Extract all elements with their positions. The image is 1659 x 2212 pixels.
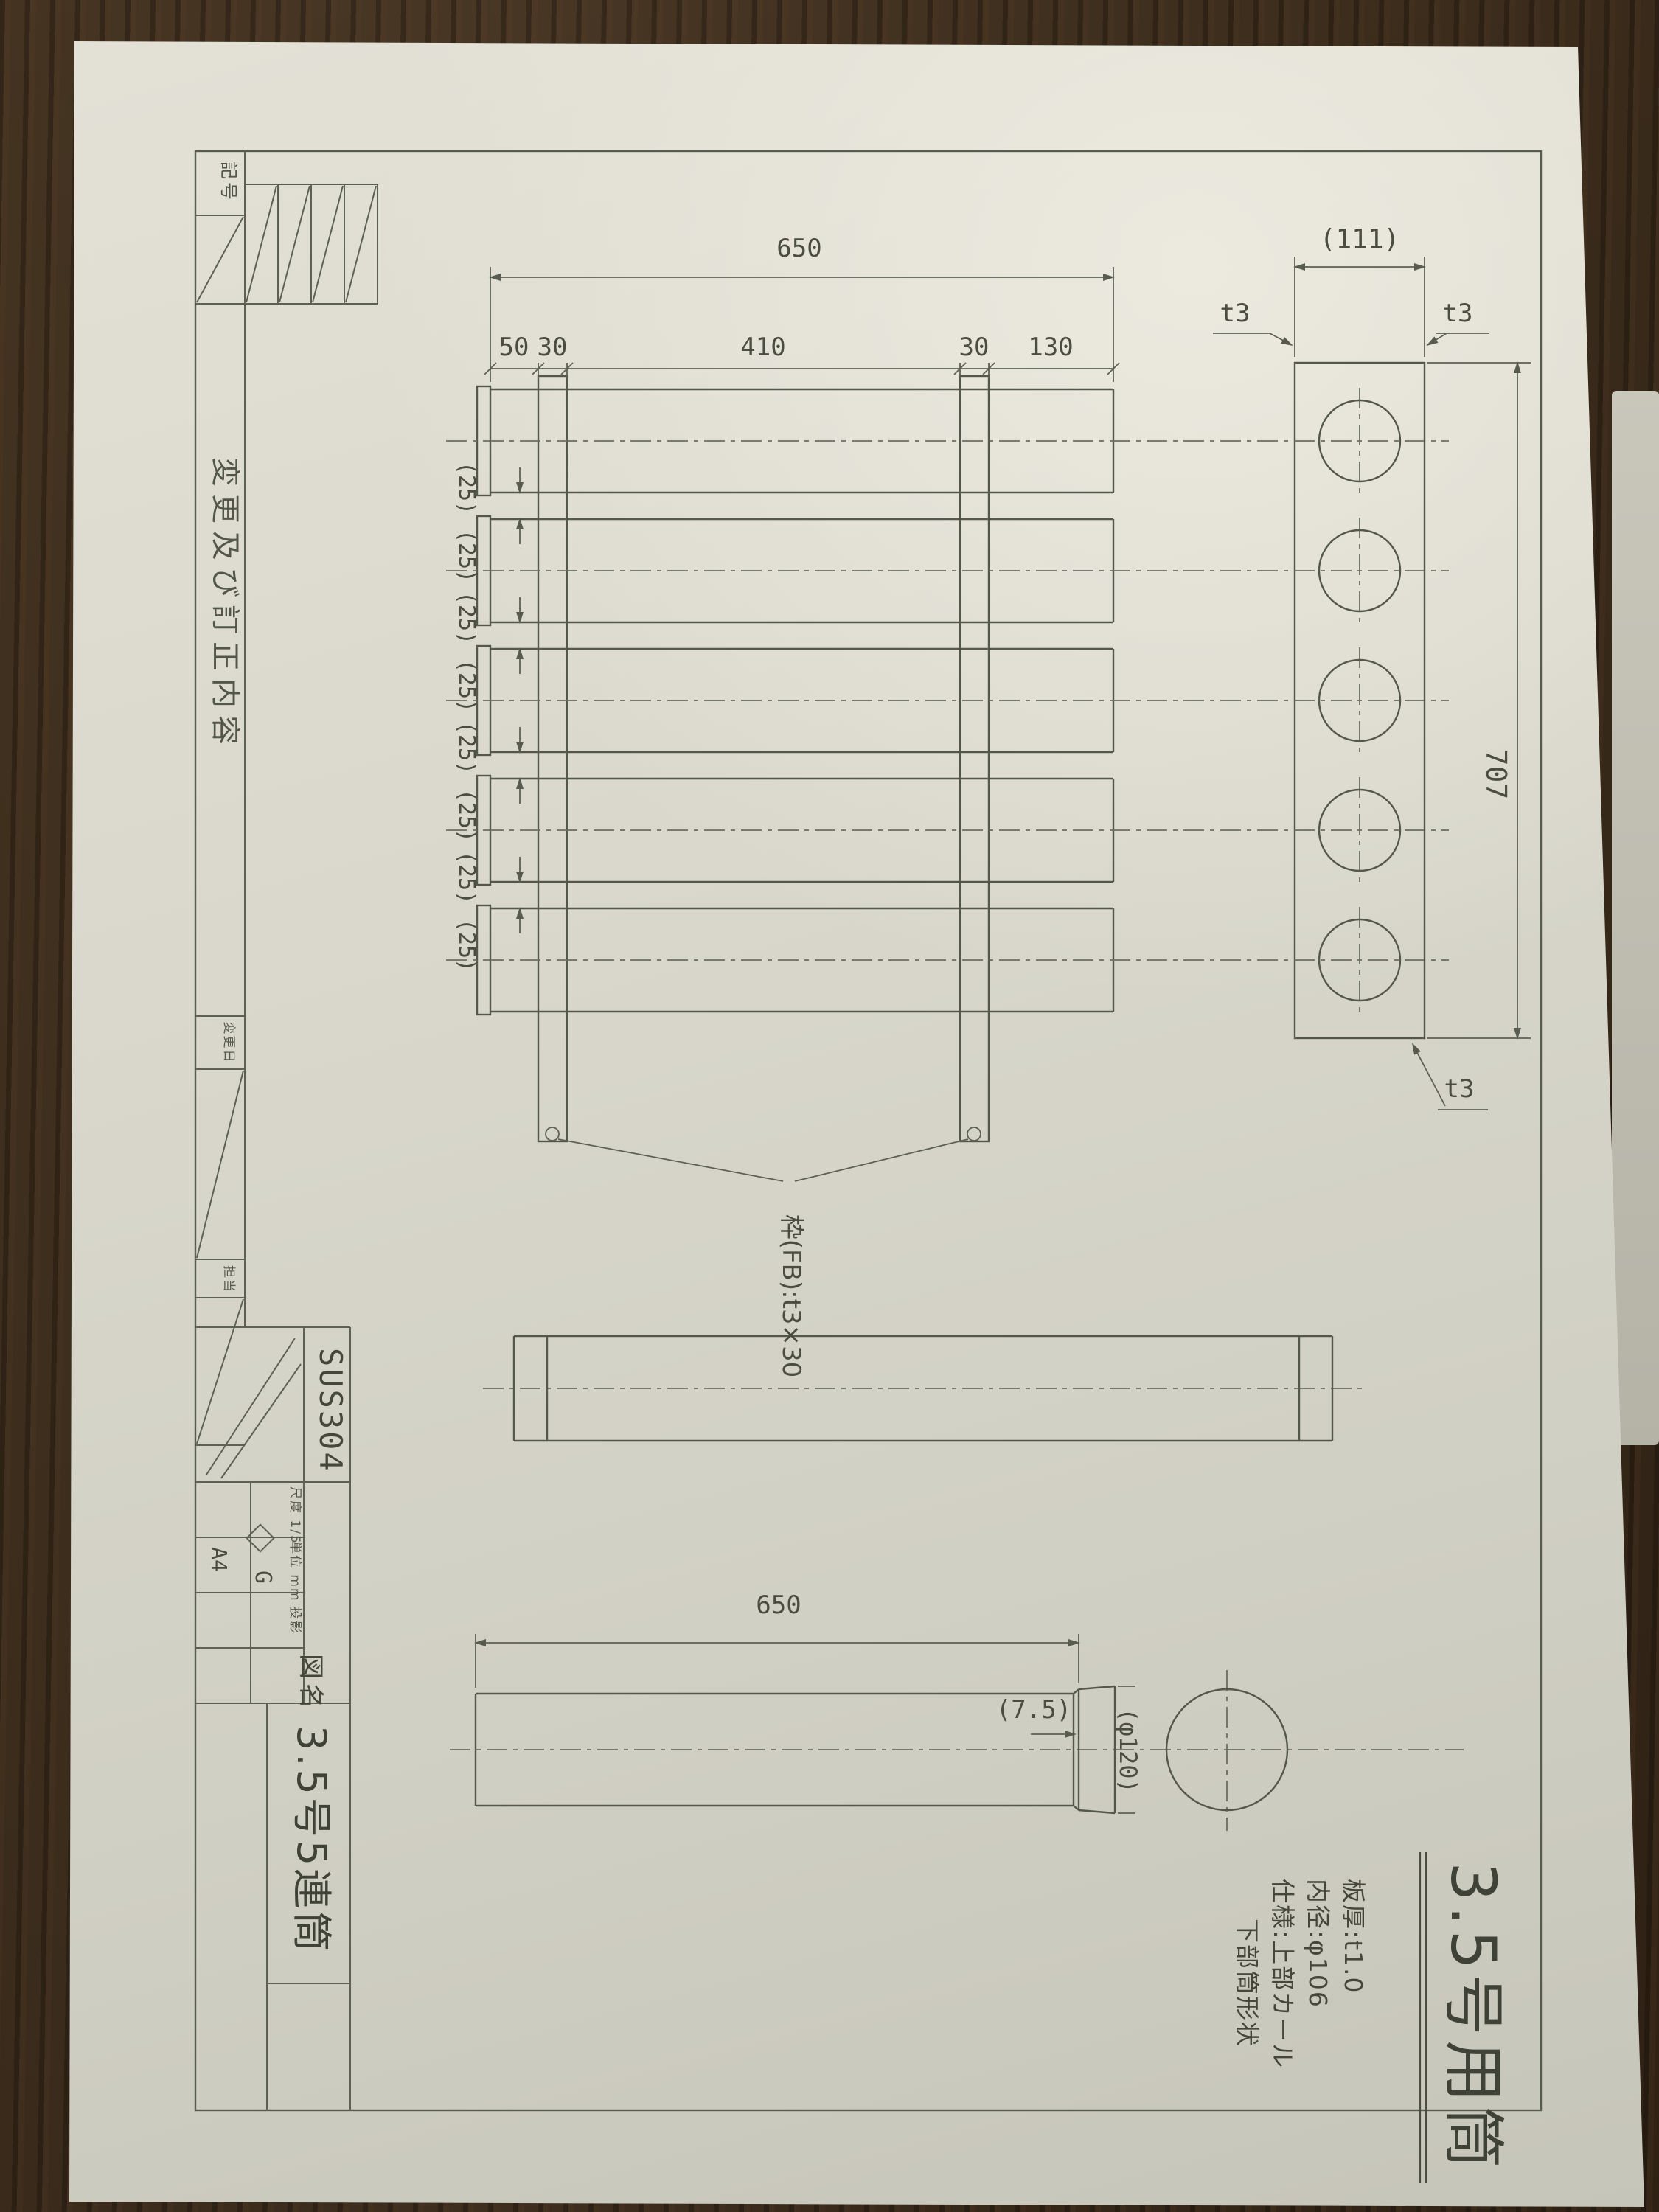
dim-50: 50 — [498, 335, 529, 361]
material-sus304: SUS304 — [314, 1348, 347, 1469]
dim-30b: 30 — [959, 335, 990, 361]
dim-30a: 30 — [537, 335, 568, 361]
dim-25-gap4b: (25) — [455, 911, 479, 979]
dim-t3-left: t3 — [1215, 301, 1255, 327]
revision-symbol-label: 記号 — [219, 159, 237, 205]
centerlines — [446, 388, 1464, 1831]
tube-bank-view — [477, 376, 1113, 1141]
frame-rail-left — [538, 376, 567, 1141]
spec-inner-diameter: 内径:φ106 — [1304, 1879, 1330, 2107]
sheet-size-a4: A4 — [209, 1541, 230, 1578]
drawing-sheet: 650 50 30 410 30 130 (111) t3 t3 t3 650 … — [0, 0, 1659, 2212]
dim-t3-right: t3 — [1438, 301, 1478, 327]
company-logo-letter: G — [251, 1562, 275, 1593]
dim-25-gap4a: (25) — [455, 844, 479, 911]
frame-flat-bar-note: 枠(FB):t3×30 — [777, 1180, 804, 1412]
revision-date-label: 変更日 — [221, 1019, 234, 1066]
spec-thickness: 板厚:t1.0 — [1340, 1879, 1366, 2107]
border-frame — [195, 151, 1541, 2110]
dim-25-gap3b: (25) — [455, 782, 479, 849]
dim-25-gap2a: (25) — [455, 584, 479, 652]
revision-person-label: 担当 — [221, 1262, 234, 1296]
titleblock-scale-row: 尺度 1/5 — [288, 1486, 301, 1535]
dim-707: 707 — [1481, 728, 1510, 820]
dim-25-gap1b: (25) — [455, 522, 479, 590]
dimension-lines — [476, 257, 1531, 1813]
table-edge-object — [1612, 391, 1659, 1445]
titleblock-projection-row: 投影 — [288, 1597, 301, 1644]
spec-upper-end: 仕様:上部カール — [1269, 1879, 1295, 2129]
dim-130: 130 — [1027, 335, 1074, 361]
note-title-underline — [1420, 1852, 1426, 2183]
drawing-linework — [0, 0, 1659, 2212]
dim-7-5: (7.5) — [995, 1697, 1072, 1724]
revision-content-label: 変更及び訂正内容 — [209, 424, 240, 785]
dim-650-detail: 650 — [745, 1593, 813, 1619]
drawing-note-title: 3.5号用筒 — [1441, 1849, 1506, 2185]
photo-of-technical-drawing: { "notes": { "title": "3.5号用筒", "spec_th… — [0, 0, 1659, 2212]
frame-rail-right — [960, 376, 989, 1141]
spec-lower-end: 下部筒形状 — [1234, 1919, 1259, 2140]
titleblock-unit-row: 単位 mm — [288, 1541, 301, 1590]
dim-650-total: 650 — [765, 236, 833, 262]
dim-410: 410 — [740, 335, 787, 361]
drawing-name-label: 図名 — [296, 1646, 323, 1721]
drawing-name: 3.5号5連筒 — [290, 1725, 332, 1939]
dim-111: (111) — [1315, 226, 1404, 254]
dim-25-gap3a: (25) — [455, 714, 479, 782]
dim-25-gap2b: (25) — [455, 652, 479, 720]
dim-phi120: (φ120) — [1115, 1694, 1140, 1806]
revision-strip — [195, 151, 378, 1445]
dim-25-gap1a: (25) — [455, 454, 479, 522]
dim-t3-bottom: t3 — [1439, 1077, 1479, 1103]
